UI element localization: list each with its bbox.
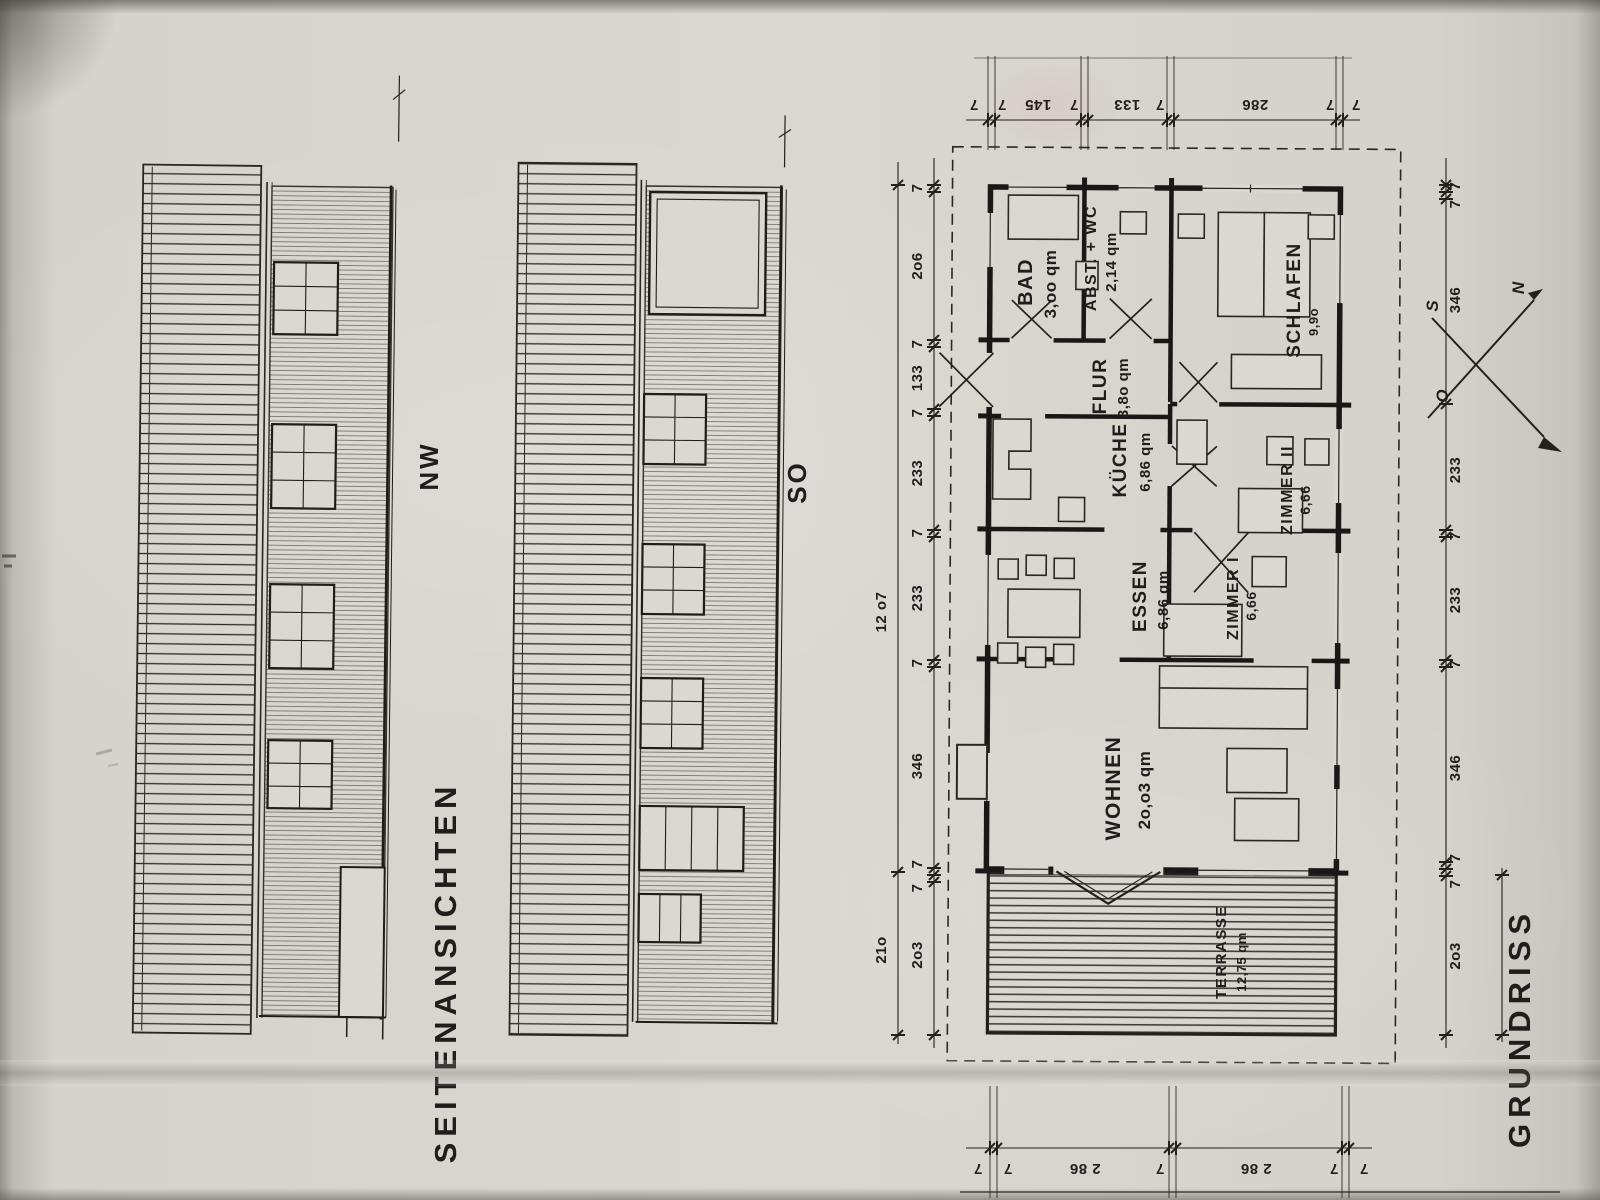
elevation-nw (133, 73, 406, 1040)
room-label: BAD (1015, 258, 1037, 306)
dim-label: 21o (873, 936, 890, 963)
dim-label: 7 (1360, 1160, 1369, 1177)
dim-label: 346 (1447, 755, 1464, 782)
dim-label: 2o3 (909, 941, 926, 968)
dim-label: 286 (1242, 96, 1269, 113)
elevation-label-nw: NW (414, 441, 444, 490)
scan-artifacts (2, 556, 118, 766)
roof-hatch (133, 165, 262, 1034)
compass-n: N (1509, 281, 1528, 294)
dim-label: 233 (909, 585, 926, 612)
room-label: KÜCHE (1110, 422, 1131, 497)
room-label: WOHNEN (1102, 736, 1125, 841)
dim-label: 233 (1447, 457, 1464, 484)
page-edge-bottom (0, 1188, 1600, 1200)
room-label: ZIMMER II (1279, 445, 1296, 535)
section-title-plan: GRUNDRISS (1502, 908, 1537, 1148)
dim-label: 7 (1447, 200, 1464, 209)
section-title-elevations: SEITENANSICHTEN (428, 781, 463, 1164)
drawing: NW (0, 0, 1600, 1200)
room-label: TERRASSE (1213, 905, 1230, 999)
dim-label: 346 (909, 753, 926, 780)
room-area: 6,86 qm (1137, 432, 1154, 491)
dim-label: 7 (1326, 96, 1335, 113)
room-area: 6,66 (1243, 591, 1259, 620)
dim-label: 2 86 (1240, 1160, 1271, 1177)
dim-label: 7 (1004, 1160, 1013, 1177)
dim-label: 233 (909, 460, 926, 487)
dim-label: 133 (909, 365, 926, 392)
reference-tick (393, 76, 406, 142)
dim-label: 2o6 (909, 252, 926, 279)
room-label: SCHLAFEN (1284, 242, 1305, 357)
compass-icon: S N O (1423, 281, 1562, 452)
dim-label: 7 (1447, 880, 1464, 889)
reference-tick (779, 115, 792, 167)
room-area: 2o,o3 qm (1135, 751, 1154, 830)
dim-label: 7 (909, 409, 926, 418)
room-area: 3,8o qm (1115, 358, 1132, 418)
roof-hatch (509, 163, 636, 1036)
paper-fold (0, 1060, 1600, 1086)
room-label: ZIMMER I (1225, 556, 1242, 640)
door (339, 867, 385, 1018)
dim-label: 233 (1447, 587, 1464, 614)
dim-label: 7 (974, 1160, 983, 1177)
room-area: 6,86 qm (1155, 570, 1172, 629)
dim-label: 2 86 (1069, 1160, 1100, 1177)
dim-label: 7 (1070, 96, 1079, 113)
furniture (957, 195, 1335, 841)
dim-label: 7 (1156, 96, 1165, 113)
dim-label: 7 (1447, 182, 1464, 191)
dim-label: 7 (998, 96, 1007, 113)
dim-label: 7 (909, 340, 926, 349)
dim-label: 7 (1447, 854, 1464, 863)
dim-label: 7 (970, 96, 979, 113)
dim-label: 7 (909, 529, 926, 538)
terrace-hatch (987, 873, 1336, 1035)
compass-s: S (1423, 300, 1442, 312)
room-label: ESSEN (1130, 560, 1151, 632)
dim-label: 7 (1447, 532, 1464, 541)
room-area: 3,oo qm (1041, 250, 1060, 319)
elevation-so (509, 113, 791, 1038)
dim-label: 133 (1114, 96, 1141, 113)
dim-label: 7 (909, 659, 926, 668)
dim-label: 145 (1025, 96, 1052, 113)
dim-label: 7 (1447, 660, 1464, 669)
room-area: 6,66 (1297, 485, 1313, 514)
compass-o: O (1433, 389, 1452, 402)
room-area: 12,75 qm (1234, 932, 1249, 992)
glazed-door (649, 192, 766, 315)
room-label: ABST. + WC (1083, 205, 1100, 311)
scanned-blueprint-page: NW (0, 0, 1600, 1200)
dim-label: 2o3 (1447, 942, 1464, 969)
dim-label: 12 o7 (873, 592, 890, 633)
room-area: 2,14 qm (1103, 232, 1120, 291)
dim-label: 7 (1156, 1160, 1165, 1177)
dim-label: 7 (909, 884, 926, 893)
dim-label: 346 (1447, 287, 1464, 314)
dim-label: 7 (1352, 96, 1361, 113)
dim-label: 7 (909, 184, 926, 193)
dim-label: 7 (909, 860, 926, 869)
room-label: FLUR (1090, 358, 1111, 415)
dim-label: 7 (1330, 1160, 1339, 1177)
page-edge-top (0, 0, 1600, 14)
elevation-label-so: SO (782, 460, 812, 504)
room-area: 9,9o (1306, 308, 1321, 336)
